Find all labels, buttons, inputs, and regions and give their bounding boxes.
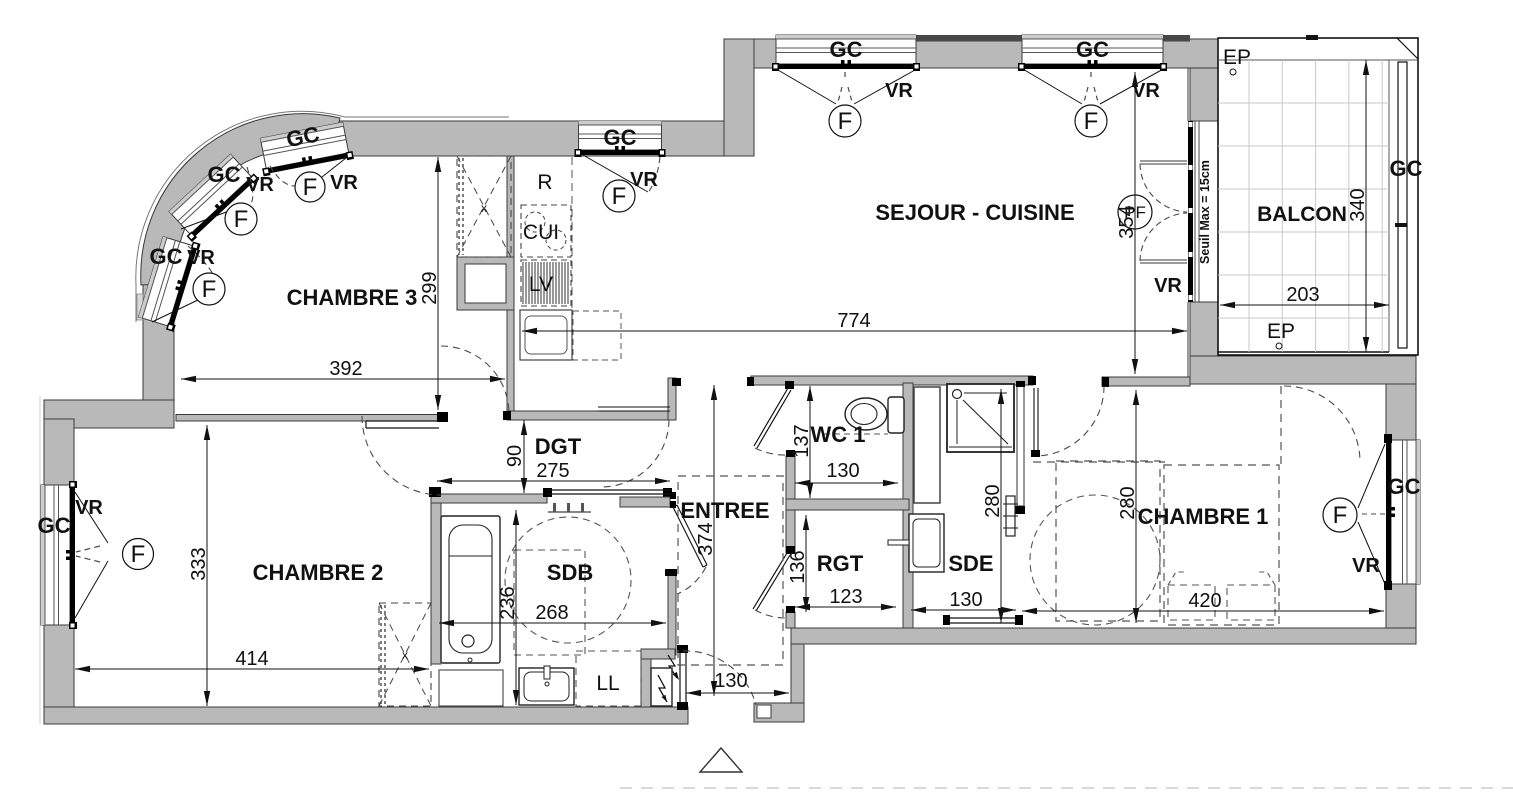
svg-text:123: 123 (829, 586, 862, 608)
svg-text:WC 1: WC 1 (811, 422, 866, 447)
svg-text:340: 340 (1347, 188, 1369, 221)
svg-text:VR: VR (187, 247, 215, 269)
svg-text:275: 275 (536, 460, 569, 482)
svg-text:F: F (1084, 108, 1099, 135)
svg-text:VR: VR (75, 497, 103, 519)
svg-text:203: 203 (1286, 284, 1319, 306)
svg-text:EP: EP (1223, 46, 1251, 69)
svg-text:VR: VR (1154, 275, 1182, 297)
svg-text:130: 130 (826, 460, 859, 482)
svg-text:F: F (838, 108, 853, 135)
svg-text:VR: VR (1352, 555, 1380, 577)
svg-text:F: F (131, 541, 146, 568)
svg-text:Seuil Max = 15cm: Seuil Max = 15cm (1198, 160, 1212, 264)
svg-text:280: 280 (982, 484, 1004, 517)
svg-text:392: 392 (329, 358, 362, 380)
svg-text:F: F (303, 174, 318, 201)
svg-text:DGT: DGT (535, 434, 582, 459)
svg-text:RGT: RGT (817, 551, 864, 576)
svg-text:VR: VR (330, 172, 358, 194)
svg-text:R: R (537, 171, 552, 194)
svg-text:GC: GC (38, 513, 71, 538)
svg-text:130: 130 (949, 589, 982, 611)
svg-text:BALCON: BALCON (1257, 203, 1347, 226)
svg-text:SDB: SDB (547, 560, 593, 585)
svg-text:374: 374 (695, 522, 717, 555)
svg-text:VR: VR (885, 80, 913, 102)
svg-text:F: F (202, 276, 217, 303)
svg-text:GC: GC (1388, 474, 1421, 499)
svg-text:GC: GC (1076, 37, 1109, 62)
svg-text:LV: LV (529, 273, 553, 296)
svg-text:136: 136 (787, 550, 809, 583)
svg-text:268: 268 (535, 602, 568, 624)
svg-text:VR: VR (630, 169, 658, 191)
svg-text:414: 414 (235, 648, 268, 670)
svg-text:130: 130 (714, 670, 747, 692)
svg-text:GC: GC (1390, 156, 1423, 181)
svg-text:CUI: CUI (523, 221, 559, 244)
svg-text:F: F (234, 206, 249, 233)
svg-text:VR: VR (1132, 80, 1160, 102)
svg-text:SDE: SDE (948, 551, 993, 576)
svg-text:EP: EP (1267, 320, 1295, 343)
svg-text:GC: GC (830, 37, 863, 62)
svg-text:CHAMBRE 1: CHAMBRE 1 (1138, 504, 1269, 529)
svg-text:GC: GC (208, 162, 241, 187)
svg-text:280: 280 (1117, 486, 1139, 519)
svg-text:GC: GC (150, 244, 183, 269)
svg-text:299: 299 (419, 271, 441, 304)
svg-text:90: 90 (504, 445, 526, 467)
svg-text:F: F (1333, 502, 1348, 529)
svg-text:VR: VR (246, 174, 274, 196)
svg-text:354: 354 (1116, 205, 1138, 238)
svg-text:F: F (612, 183, 627, 210)
svg-text:137: 137 (791, 424, 813, 457)
svg-text:x: x (402, 648, 408, 662)
svg-text:GC: GC (604, 125, 637, 150)
svg-text:420: 420 (1188, 590, 1221, 612)
svg-text:CHAMBRE 2: CHAMBRE 2 (253, 560, 384, 585)
svg-text:SEJOUR - CUISINE: SEJOUR - CUISINE (875, 200, 1074, 225)
svg-text:333: 333 (188, 547, 210, 580)
svg-text:ENTREE: ENTREE (680, 498, 769, 523)
svg-text:774: 774 (837, 310, 870, 332)
svg-text:LL: LL (596, 672, 619, 695)
svg-text:CHAMBRE 3: CHAMBRE 3 (287, 285, 418, 310)
svg-text:x: x (481, 201, 487, 215)
svg-text:236: 236 (497, 586, 519, 619)
